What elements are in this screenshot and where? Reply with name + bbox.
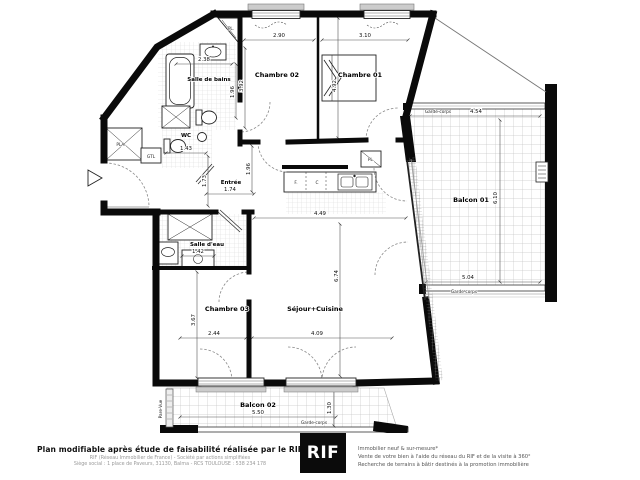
- kitchen-tile-floor: [286, 192, 386, 214]
- dim-1-74: 1.74: [224, 187, 237, 193]
- room-label-balcon-02: Balcon 02: [240, 401, 276, 409]
- dim-1-96-b: 1.96: [246, 162, 252, 175]
- kitchen: [284, 151, 381, 192]
- balcony-02-railing: [166, 427, 408, 432]
- pare-vue-label: Pare-Vue: [158, 399, 164, 418]
- dim-1-42: 1.42: [192, 249, 204, 255]
- bathroom-door-arc: [240, 102, 270, 132]
- garde-corps-label-bottom: Garde-corps: [451, 289, 478, 295]
- wc-corner-sink: [198, 133, 207, 142]
- room-label-balcon-01: Balcon 01: [453, 196, 489, 204]
- room-label-entree: Entrée: [221, 179, 242, 186]
- shutter-box-1: [248, 4, 304, 10]
- window-bedroom-01: [364, 11, 410, 19]
- footer-left-block: Plan modifiable après étude de faisabili…: [34, 445, 306, 468]
- walls: [104, 14, 436, 383]
- room-label-salle-deau: Salle d'eau: [190, 242, 224, 248]
- kitchen-counter: [284, 172, 376, 192]
- room-label-wc: WC: [181, 133, 191, 139]
- room-label-chambre-01: Chambre 01: [338, 71, 383, 79]
- dim-6-10: 6.10: [493, 191, 499, 204]
- entrance-arrow: [88, 170, 102, 186]
- rif-logo: RIF: [300, 433, 346, 473]
- footer-service-line-3: Recherche de terrains à bâtir destinés à…: [358, 462, 628, 470]
- dim-4-49: 4.49: [314, 211, 327, 217]
- balcony-door-arc-2: [375, 242, 408, 275]
- footer-service-line-1: Immobilier neuf & sur-mesure*: [358, 446, 628, 454]
- window-bedroom-02: [252, 11, 300, 19]
- shutter-box-3: [196, 387, 266, 392]
- garde-corps-label-balcon-02: Garde-corps: [301, 420, 328, 426]
- fridge-label: F.: [294, 180, 297, 186]
- garde-corps-label-top: Garde-corps: [425, 109, 452, 115]
- bedroom-03-window-door-arc: [200, 349, 232, 381]
- shutter-box-4: [284, 387, 358, 392]
- footer-service-line-2: Vente de votre bien à l'aide du réseau d…: [358, 454, 628, 462]
- toilet-bowl: [202, 111, 217, 124]
- bedroom-01-door-arc: [366, 108, 398, 140]
- floor-plan-page: Salle de bains WC Chambre 02 Chambre 01 …: [0, 0, 640, 480]
- curtain-symbol-1: [255, 22, 287, 28]
- dim-1-96-a: 1.96: [230, 85, 236, 98]
- dim-3-67: 3.67: [191, 314, 197, 326]
- room-label-chambre-02: Chambre 02: [255, 71, 299, 79]
- room-label-chambre-03: Chambre 03: [205, 305, 249, 313]
- sloped-closet-label: PL.: [228, 26, 234, 32]
- sejour-closet-label: PL.: [368, 157, 374, 163]
- sejour-french-door-arc-left: [288, 347, 322, 381]
- balcony-01-right-wall: [545, 84, 557, 302]
- dim-3-10: 3.10: [359, 33, 372, 39]
- privacy-screen: [166, 389, 173, 427]
- dim-2-38: 2.38: [198, 57, 211, 63]
- entrance-door-arc: [105, 163, 149, 207]
- dim-1-43: 1.43: [180, 146, 192, 152]
- balcony-02: [160, 388, 408, 436]
- window-sejour: [286, 378, 356, 386]
- balcony-drain-grate: [536, 162, 548, 182]
- balcony-01-bottom-railing: [424, 285, 545, 291]
- curtain-symbol-2: [367, 22, 399, 28]
- shutter-box-2: [360, 4, 414, 10]
- wc-toilet-tank: [164, 139, 170, 153]
- window-bedroom-03: [198, 378, 264, 386]
- footer-address-line: Siège social : 1 place de Paveurs, 31130…: [34, 462, 306, 468]
- footer-title: Plan modifiable après étude de faisabili…: [34, 445, 306, 454]
- dim-4-09: 4.09: [311, 331, 324, 337]
- dim-2-44: 2.44: [208, 331, 221, 337]
- dim-4-54: 4.54: [470, 109, 483, 115]
- balcony-02-deck: [167, 388, 397, 428]
- building-overhang-edge: [435, 18, 546, 92]
- footer-right-block: Immobilier neuf & sur-mesure* Vente de v…: [358, 446, 628, 469]
- dim-4-92: 4.92: [332, 80, 338, 92]
- dim-1-73: 1.73: [202, 175, 208, 187]
- floor-plan-drawing: Salle de bains WC Chambre 02 Chambre 01 …: [0, 0, 640, 436]
- dim-5-04: 5.04: [462, 275, 475, 281]
- dim-1-30: 1.30: [327, 401, 333, 414]
- bedroom-03-door-arc: [219, 272, 249, 302]
- dim-5-50: 5.50: [252, 410, 265, 416]
- room-label-sejour-cuisine: Séjour+Cuisine: [287, 305, 343, 313]
- dim-6-74: 6.74: [334, 269, 340, 282]
- cooker-label: C: [315, 180, 318, 186]
- room-label-salle-de-bains: Salle de bains: [187, 77, 231, 83]
- shower-room-sink: [158, 242, 178, 264]
- gtl-label: GTL: [147, 154, 156, 160]
- sejour-french-door-arc-right: [322, 347, 356, 381]
- footer: Plan modifiable après étude de faisabili…: [0, 433, 640, 480]
- dim-3-92: 3.92: [239, 80, 245, 92]
- entry-closet-label: PLA.: [116, 142, 125, 148]
- dim-2-90: 2.90: [273, 33, 286, 39]
